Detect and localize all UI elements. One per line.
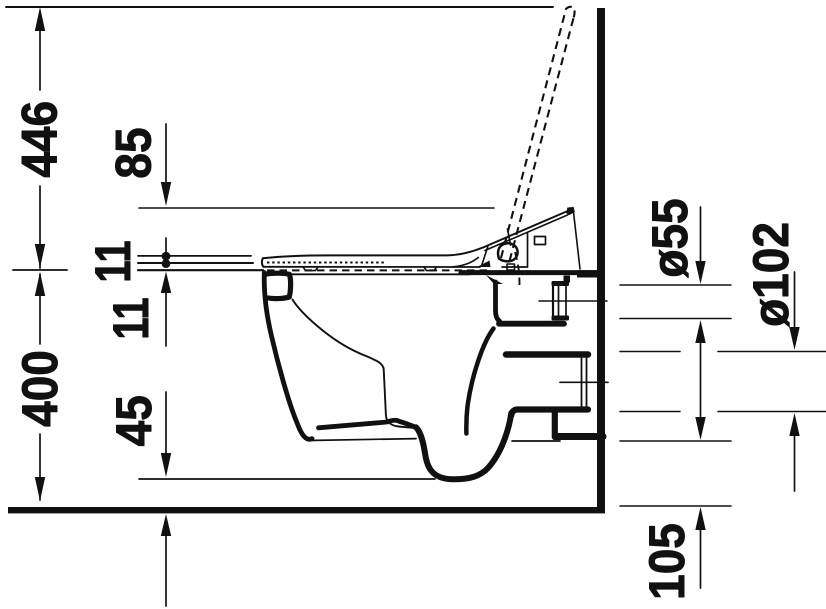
svg-text:11: 11 [103,297,159,339]
svg-text:ø102: ø102 [744,222,799,327]
svg-text:105: 105 [640,523,695,600]
svg-text:11: 11 [85,240,141,282]
svg-text:85: 85 [107,127,162,178]
svg-text:400: 400 [13,350,68,427]
svg-text:ø55: ø55 [643,198,698,277]
svg-text:45: 45 [107,395,162,446]
svg-text:446: 446 [13,101,68,178]
